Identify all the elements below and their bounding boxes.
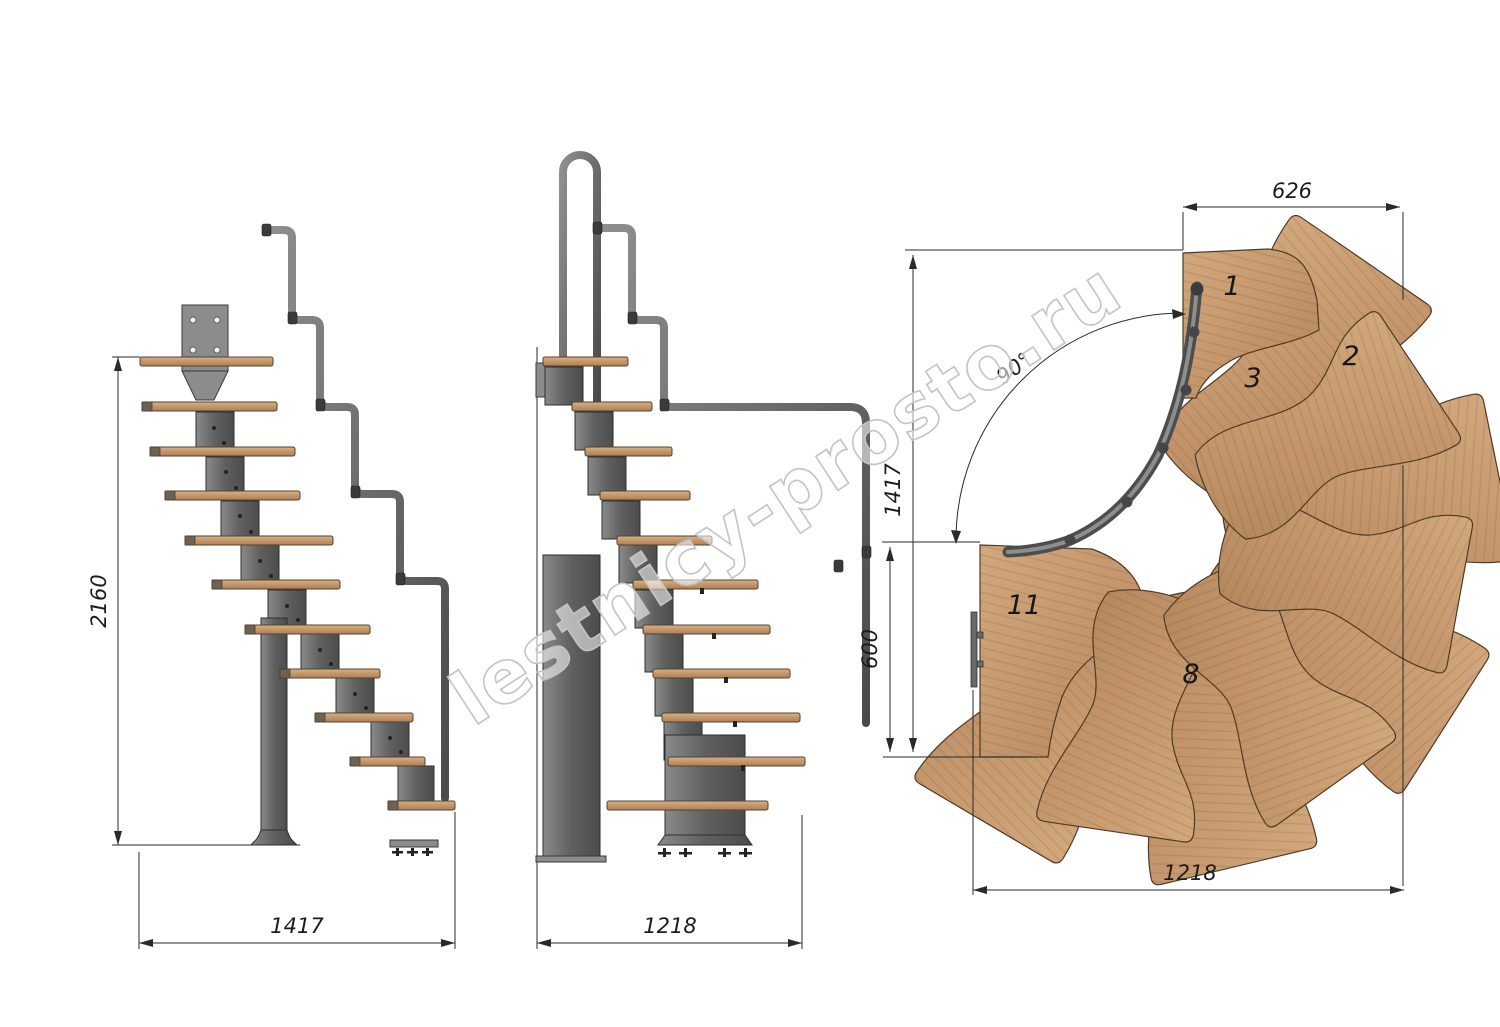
anchor-bolts (392, 848, 433, 856)
tread-number-8: 8 (1182, 659, 1199, 690)
staircase-technical-drawing: 2160 1417 (0, 0, 1500, 1027)
drawing-canvas: 2160 1417 (0, 0, 1500, 1027)
tread-number-1: 1 (1223, 271, 1240, 302)
plan-view: 626 1417 600 1218 90° 1 2 3 (858, 179, 1500, 895)
tread (142, 402, 277, 411)
wall-mount-plate (182, 305, 228, 400)
tread (212, 580, 340, 589)
dim-height-a: 2160 (87, 574, 111, 627)
dim-width-b: 1218 (643, 914, 696, 938)
tread (643, 625, 770, 634)
tread-number-3: 3 (1244, 363, 1261, 394)
tread (600, 491, 690, 500)
spine-modules-a (196, 412, 434, 806)
tread (607, 801, 768, 810)
dim-entry-height: 600 (858, 629, 882, 669)
dim-bottom-width: 1218 (1163, 861, 1216, 885)
tread (543, 357, 628, 366)
tread-number-2: 2 (1342, 341, 1359, 372)
tread (185, 536, 333, 545)
dim-top-width: 626 (1272, 179, 1312, 203)
tread (662, 713, 800, 722)
tread (350, 757, 425, 766)
tread (150, 447, 295, 456)
anchor-bolts-b (658, 848, 752, 857)
side-elevation-a: 2160 1417 (87, 146, 455, 949)
tread (245, 625, 370, 634)
support-column-a (251, 618, 438, 856)
tread (315, 713, 413, 722)
tread (572, 402, 652, 411)
tread (585, 447, 672, 456)
tread (165, 491, 300, 500)
tread-number-11: 11 (1007, 590, 1041, 621)
tread (653, 669, 790, 678)
dim-width-a: 1417 (270, 914, 324, 938)
tread (140, 357, 273, 366)
tread (668, 757, 805, 766)
tread (280, 669, 380, 678)
